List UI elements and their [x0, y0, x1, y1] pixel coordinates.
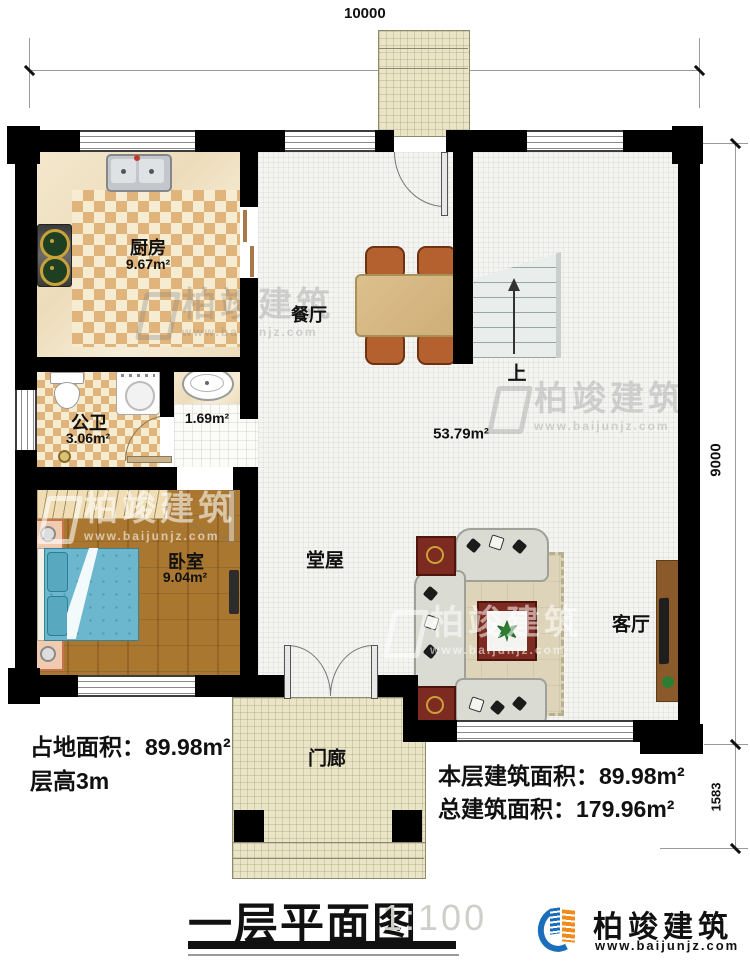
hall-label: 堂屋: [306, 546, 344, 573]
logo-building-icon: [538, 900, 586, 956]
sofa-top: [455, 528, 549, 582]
note-floor-area: 本层建筑面积：89.98m²: [438, 757, 685, 791]
dining-table: [355, 274, 460, 337]
bedroom-area: 9.04m²: [163, 569, 207, 585]
porch-column: [392, 810, 422, 842]
dim-right-ext-1: [702, 143, 748, 144]
washer-buttons: [121, 374, 155, 377]
hall-area: 53.79m²: [433, 426, 489, 443]
nook-area: 1.69m²: [185, 410, 229, 426]
entry-door-leaf: [371, 645, 378, 699]
stairs-up-arrow: [513, 288, 515, 354]
stove: [37, 224, 72, 287]
note-site-area: 占地面积：89.98m²: [30, 728, 231, 762]
wall-top: [446, 130, 527, 152]
bathroom-area: 3.06m²: [66, 430, 110, 446]
logo: 柏竣建筑 www.baijunjz.com: [538, 898, 738, 960]
bedroom-door-leaf: [228, 490, 235, 542]
corner-block: [640, 724, 703, 754]
tv-cabinet: [656, 560, 680, 702]
burner-icon: [40, 229, 70, 259]
bed-pillow: [47, 552, 68, 592]
wall-bottom: [403, 720, 457, 742]
porch-label: 门廊: [308, 744, 346, 771]
nook-sink: [182, 367, 234, 401]
back-porch-step-line: [378, 68, 468, 69]
floor-plan: 10000 9000 1583 柏竣建筑 www.baijunjz.com 柏竣…: [0, 0, 750, 967]
bedroom-window: [78, 675, 195, 697]
logo-url: www.baijunjz.com: [595, 938, 739, 953]
kitchen-sliding-door: [243, 210, 247, 242]
kitchen-sliding-door: [250, 246, 254, 277]
corner-block: [8, 668, 40, 704]
wall-left: [15, 130, 37, 390]
porch-column: [234, 810, 264, 842]
title-underline: [188, 941, 456, 949]
dining-label: 餐厅: [291, 301, 327, 327]
tv: [659, 598, 669, 665]
wall-bottom: [195, 675, 285, 697]
dim-top-line: [29, 70, 700, 71]
porch-step-line: [232, 858, 424, 859]
wall-bedroom-top: [37, 467, 177, 490]
dining-window: [285, 130, 375, 152]
burner-icon: [40, 256, 70, 286]
wall-bedroom-top: [233, 467, 258, 490]
coffee-table: [477, 601, 537, 661]
wall-right: [678, 130, 700, 742]
kitchen-area: 9.67m²: [126, 256, 170, 272]
wall-kitchen-hall: [240, 152, 258, 207]
logo-building-orange: [562, 909, 575, 942]
washer-door-icon: [125, 381, 155, 411]
wall-bath-top: [37, 357, 258, 372]
dim-right-ext-2: [704, 744, 748, 745]
wall-top: [195, 130, 285, 152]
stairs-up-arrowhead: [508, 278, 520, 291]
wall-nook-hall: [240, 357, 258, 419]
logo-building-blue: [550, 907, 560, 934]
wall-top: [375, 130, 394, 152]
bed: [37, 548, 137, 639]
sink-drain: [149, 169, 154, 174]
nook-sink-drain: [205, 381, 209, 385]
faucet-icon: [134, 155, 140, 161]
side-table: [416, 536, 456, 576]
porch-steps: [232, 842, 426, 879]
dim-right-porch-label: 1583: [709, 783, 724, 812]
stair-hall-window: [527, 130, 623, 152]
stairs-up-label: 上: [507, 359, 526, 386]
living-window: [457, 720, 633, 742]
bathroom-window: [15, 390, 37, 450]
washing-machine: [116, 370, 160, 415]
sofa-left: [414, 570, 466, 694]
wall-left: [15, 450, 37, 697]
kitchen-sink: [106, 154, 172, 192]
plant-icon: [662, 676, 674, 688]
drawing-scale: 1:100: [382, 897, 487, 939]
note-floor-height: 层高3m: [30, 762, 109, 796]
bathroom-door-leaf: [127, 456, 172, 463]
living-label: 客厅: [612, 610, 650, 637]
entry-door-leaf: [284, 645, 291, 699]
bed-pillow: [47, 596, 68, 636]
wall-bath-nook: [160, 372, 174, 417]
wardrobe: [37, 488, 168, 519]
wall-bedroom-hall: [240, 490, 258, 675]
bedroom-tv: [229, 570, 239, 614]
wall-kitchen-hall: [240, 278, 258, 360]
kitchen-window: [80, 130, 195, 152]
note-total-area: 总建筑面积：179.96m²: [438, 790, 674, 824]
dim-right-label: 9000: [708, 443, 725, 476]
floor-drain-icon: [58, 450, 71, 463]
dim-top-label: 10000: [344, 5, 386, 22]
sink-drain: [121, 169, 126, 174]
back-porch-step-line: [378, 48, 468, 49]
wall-stairwell: [453, 152, 473, 364]
back-door-leaf: [441, 152, 448, 216]
nightstand: [33, 639, 64, 671]
back-porch: [378, 30, 470, 137]
title-underline-thin: [188, 954, 459, 956]
nightstand: [33, 519, 64, 551]
